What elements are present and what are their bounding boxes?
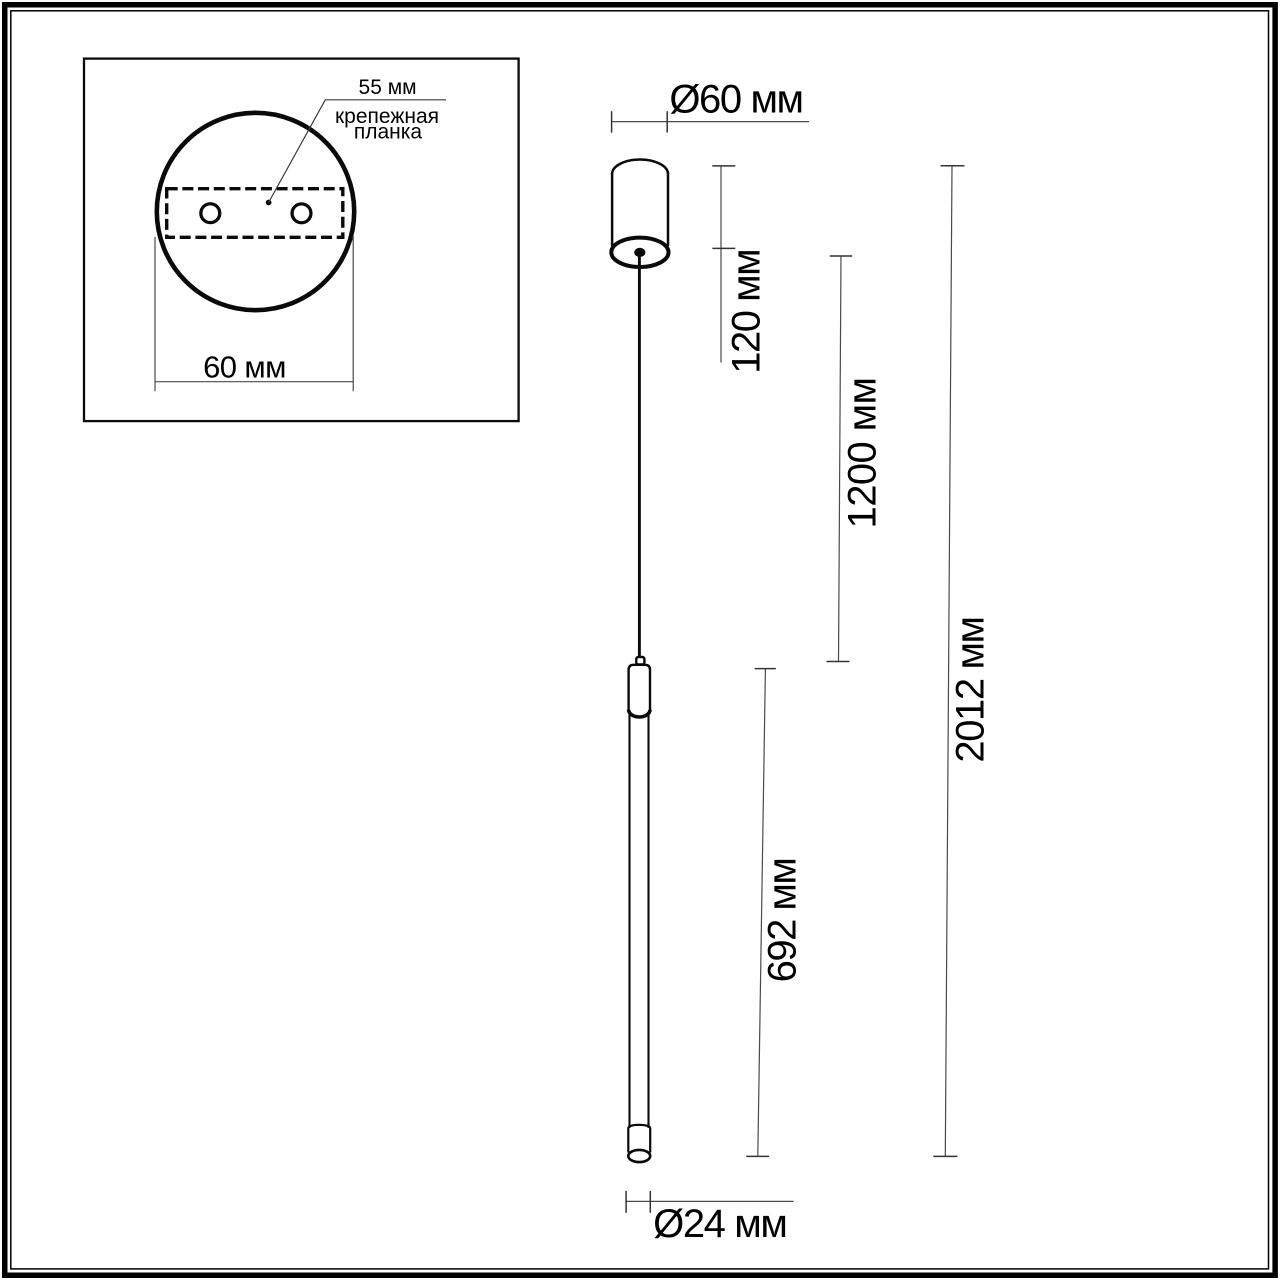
svg-text:120 мм: 120 мм [725, 250, 769, 374]
svg-text:60 мм: 60 мм [203, 350, 286, 385]
svg-text:692 мм: 692 мм [761, 859, 805, 983]
svg-text:планка: планка [354, 120, 423, 143]
svg-text:55 мм: 55 мм [359, 76, 417, 99]
svg-text:2012 мм: 2012 мм [949, 617, 993, 762]
svg-text:Ø60 мм: Ø60 мм [669, 77, 802, 121]
svg-text:1200 мм: 1200 мм [841, 378, 885, 529]
svg-text:Ø24 мм: Ø24 мм [653, 1202, 786, 1246]
